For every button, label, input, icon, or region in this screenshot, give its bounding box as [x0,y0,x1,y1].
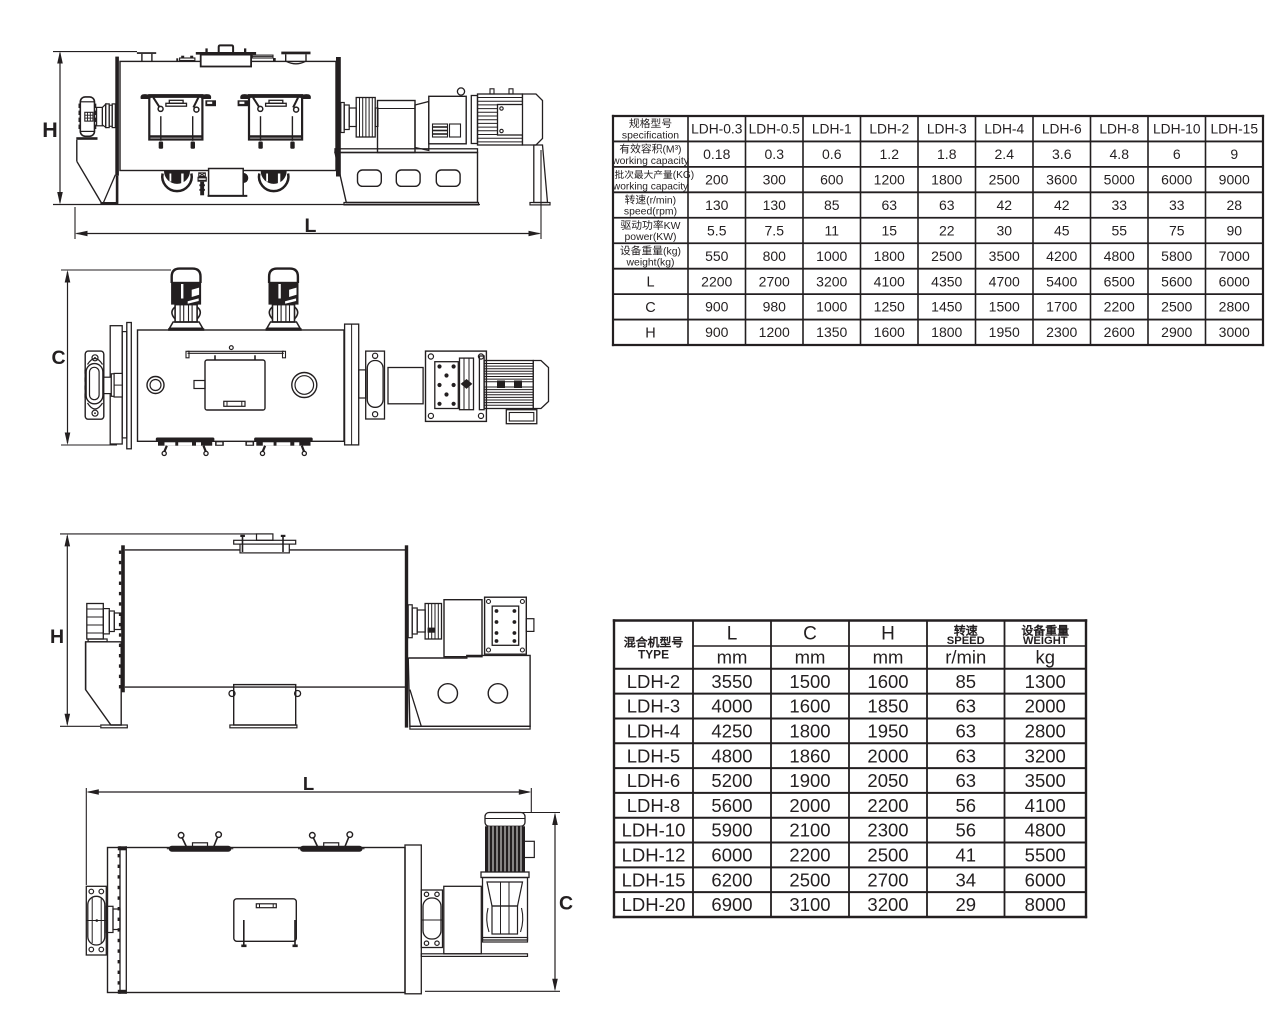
svg-text:(kg): (kg) [663,246,681,257]
svg-text:1250: 1250 [874,299,905,315]
svg-text:85: 85 [824,197,840,213]
svg-text:4100: 4100 [874,273,905,289]
svg-text:1350: 1350 [816,324,847,340]
svg-text:4100: 4100 [1025,795,1066,816]
svg-text:5.5: 5.5 [707,222,727,238]
svg-text:0.3: 0.3 [765,146,785,162]
svg-text:1500: 1500 [989,299,1020,315]
svg-text:LDH-4: LDH-4 [984,122,1024,137]
svg-text:1850: 1850 [867,696,908,717]
svg-text:1700: 1700 [1046,299,1077,315]
svg-text:2600: 2600 [1104,324,1135,340]
svg-text:63: 63 [881,197,897,213]
svg-text:800: 800 [763,248,787,264]
svg-text:specification: specification [622,130,679,141]
svg-text:2500: 2500 [789,869,830,890]
svg-text:63: 63 [939,197,955,213]
svg-text:4800: 4800 [1025,820,1066,841]
svg-text:LDH-2: LDH-2 [627,671,680,692]
svg-text:2700: 2700 [759,273,790,289]
svg-text:42: 42 [1054,197,1070,213]
svg-text:1800: 1800 [931,324,962,340]
svg-text:working capacity: working capacity [611,156,690,167]
svg-text:working capacity: working capacity [612,181,689,192]
svg-text:900: 900 [705,299,729,315]
svg-text:33: 33 [1169,197,1185,213]
svg-text:2700: 2700 [867,869,908,890]
svg-text:1200: 1200 [874,171,905,187]
svg-text:LDH-8: LDH-8 [1099,122,1139,137]
svg-text:LDH-0.5: LDH-0.5 [749,122,801,137]
svg-text:1860: 1860 [789,745,830,766]
svg-text:63: 63 [955,720,976,741]
svg-text:85: 85 [955,671,976,692]
svg-text:KW: KW [664,221,681,232]
svg-text:4800: 4800 [1104,248,1135,264]
svg-text:r/min: r/min [945,647,986,668]
svg-text:2800: 2800 [1025,720,1066,741]
svg-text:6900: 6900 [711,894,752,915]
svg-text:5800: 5800 [1161,248,1192,264]
svg-text:33: 33 [1111,197,1127,213]
svg-text:3200: 3200 [867,894,908,915]
svg-text:2050: 2050 [867,770,908,791]
svg-text:6500: 6500 [1104,273,1135,289]
svg-text:2300: 2300 [867,820,908,841]
svg-text:29: 29 [955,894,976,915]
svg-text:TYPE: TYPE [638,648,669,662]
svg-text:41: 41 [955,845,976,866]
svg-text:11: 11 [824,222,839,238]
svg-text:1900: 1900 [789,770,830,791]
svg-text:LDH-12: LDH-12 [622,845,686,866]
svg-text:1.8: 1.8 [937,146,957,162]
svg-text:H: H [645,325,655,341]
svg-text:2000: 2000 [789,795,830,816]
svg-text:2000: 2000 [1025,696,1066,717]
svg-text:H: H [50,626,64,648]
svg-text:SPEED: SPEED [947,635,985,647]
svg-text:5600: 5600 [1161,273,1192,289]
svg-text:C: C [51,347,65,369]
svg-text:LDH-8: LDH-8 [627,795,680,816]
svg-text:LDH-2: LDH-2 [869,122,909,137]
svg-text:weight(kg): weight(kg) [626,258,675,269]
svg-text:1000: 1000 [816,299,847,315]
svg-text:6: 6 [1173,146,1181,162]
svg-text:2100: 2100 [789,820,830,841]
svg-text:LDH-6: LDH-6 [627,770,680,791]
svg-text:0.18: 0.18 [703,146,730,162]
svg-text:0.6: 0.6 [822,146,842,162]
svg-text:power(KW): power(KW) [625,232,677,243]
svg-text:4250: 4250 [711,720,752,741]
svg-text:9: 9 [1230,146,1238,162]
svg-text:42: 42 [996,197,1012,213]
svg-text:7000: 7000 [1219,248,1250,264]
svg-text:LDH-10: LDH-10 [622,820,686,841]
svg-text:C: C [803,624,817,645]
svg-text:LDH-3: LDH-3 [627,696,680,717]
svg-text:2900: 2900 [1161,324,1192,340]
svg-text:2000: 2000 [867,745,908,766]
svg-text:H: H [42,118,58,142]
svg-text:34: 34 [955,869,976,890]
svg-text:LDH-0.3: LDH-0.3 [691,122,743,137]
svg-text:LDH-3: LDH-3 [927,122,967,137]
svg-text:15: 15 [881,222,897,238]
svg-text:300: 300 [763,171,787,187]
svg-text:3500: 3500 [989,248,1020,264]
svg-text:2.4: 2.4 [995,146,1015,162]
svg-text:kg: kg [1035,647,1055,668]
svg-text:(KG): (KG) [673,170,695,181]
svg-text:LDH-10: LDH-10 [1153,122,1201,137]
svg-text:130: 130 [763,197,787,213]
svg-text:WEIGHT: WEIGHT [1023,635,1068,647]
svg-text:2200: 2200 [789,845,830,866]
svg-text:600: 600 [820,171,844,187]
svg-text:L: L [303,773,314,794]
svg-text:90: 90 [1226,222,1242,238]
svg-text:1950: 1950 [867,720,908,741]
svg-text:6200: 6200 [711,869,752,890]
svg-text:2500: 2500 [867,845,908,866]
svg-text:1800: 1800 [931,171,962,187]
svg-text:6000: 6000 [711,845,752,866]
svg-text:28: 28 [1226,197,1242,213]
svg-text:3550: 3550 [711,671,752,692]
svg-text:2300: 2300 [1046,324,1077,340]
svg-text:5400: 5400 [1046,273,1077,289]
svg-text:5600: 5600 [711,795,752,816]
svg-text:LDH-20: LDH-20 [622,894,686,915]
svg-text:5000: 5000 [1104,171,1135,187]
svg-text:3200: 3200 [816,273,847,289]
svg-text:LDH-1: LDH-1 [812,122,852,137]
svg-text:mm: mm [873,647,904,668]
svg-text:3.6: 3.6 [1052,146,1072,162]
svg-text:55: 55 [1111,222,1127,238]
svg-text:1200: 1200 [759,324,790,340]
svg-text:63: 63 [955,745,976,766]
svg-text:2200: 2200 [701,273,732,289]
svg-text:130: 130 [705,197,729,213]
svg-text:LDH-15: LDH-15 [1210,122,1258,137]
svg-text:4200: 4200 [1046,248,1077,264]
svg-text:2500: 2500 [931,248,962,264]
svg-text:mm: mm [795,647,826,668]
svg-text:30: 30 [996,222,1012,238]
svg-text:L: L [305,215,317,237]
svg-text:1450: 1450 [931,299,962,315]
svg-text:1600: 1600 [867,671,908,692]
svg-text:6000: 6000 [1219,273,1250,289]
svg-text:63: 63 [955,696,976,717]
svg-text:3100: 3100 [789,894,830,915]
svg-text:4.8: 4.8 [1110,146,1130,162]
svg-text:9000: 9000 [1219,171,1250,187]
svg-text:22: 22 [939,222,955,238]
svg-text:2800: 2800 [1219,299,1250,315]
svg-text:8000: 8000 [1025,894,1066,915]
svg-text:1600: 1600 [874,324,905,340]
svg-text:(M³): (M³) [662,145,681,156]
svg-text:45: 45 [1054,222,1070,238]
svg-text:56: 56 [955,795,976,816]
svg-text:5200: 5200 [711,770,752,791]
svg-text:speed(rpm): speed(rpm) [624,207,677,218]
svg-text:200: 200 [705,171,729,187]
svg-text:1000: 1000 [816,248,847,264]
svg-text:900: 900 [705,324,729,340]
svg-text:5900: 5900 [711,820,752,841]
svg-text:2500: 2500 [1161,299,1192,315]
svg-text:550: 550 [705,248,729,264]
svg-text:6000: 6000 [1161,171,1192,187]
svg-text:(r/min): (r/min) [646,196,676,207]
svg-text:1500: 1500 [789,671,830,692]
svg-text:LDH-5: LDH-5 [627,745,680,766]
svg-text:C: C [559,893,573,915]
svg-text:7.5: 7.5 [765,222,785,238]
svg-text:56: 56 [955,820,976,841]
svg-text:3500: 3500 [1025,770,1066,791]
svg-text:1800: 1800 [874,248,905,264]
svg-text:1950: 1950 [989,324,1020,340]
svg-text:L: L [727,624,738,645]
svg-text:3600: 3600 [1046,171,1077,187]
svg-text:LDH-4: LDH-4 [627,720,680,741]
svg-text:L: L [646,274,654,290]
svg-text:4350: 4350 [931,273,962,289]
svg-text:1.2: 1.2 [880,146,900,162]
svg-text:3200: 3200 [1025,745,1066,766]
svg-text:5500: 5500 [1025,845,1066,866]
svg-text:63: 63 [955,770,976,791]
svg-text:4000: 4000 [711,696,752,717]
svg-text:2200: 2200 [1104,299,1135,315]
svg-text:4700: 4700 [989,273,1020,289]
svg-text:1800: 1800 [789,720,830,741]
svg-text:mm: mm [717,647,748,668]
svg-text:6000: 6000 [1025,869,1066,890]
svg-text:LDH-6: LDH-6 [1042,122,1082,137]
svg-text:75: 75 [1169,222,1185,238]
svg-text:980: 980 [763,299,787,315]
svg-text:3000: 3000 [1219,324,1250,340]
svg-text:2500: 2500 [989,171,1020,187]
svg-text:C: C [645,300,655,316]
svg-text:1300: 1300 [1025,671,1066,692]
svg-text:H: H [881,624,895,645]
svg-text:LDH-15: LDH-15 [622,869,686,890]
svg-text:2200: 2200 [867,795,908,816]
svg-text:4800: 4800 [711,745,752,766]
svg-text:1600: 1600 [789,696,830,717]
